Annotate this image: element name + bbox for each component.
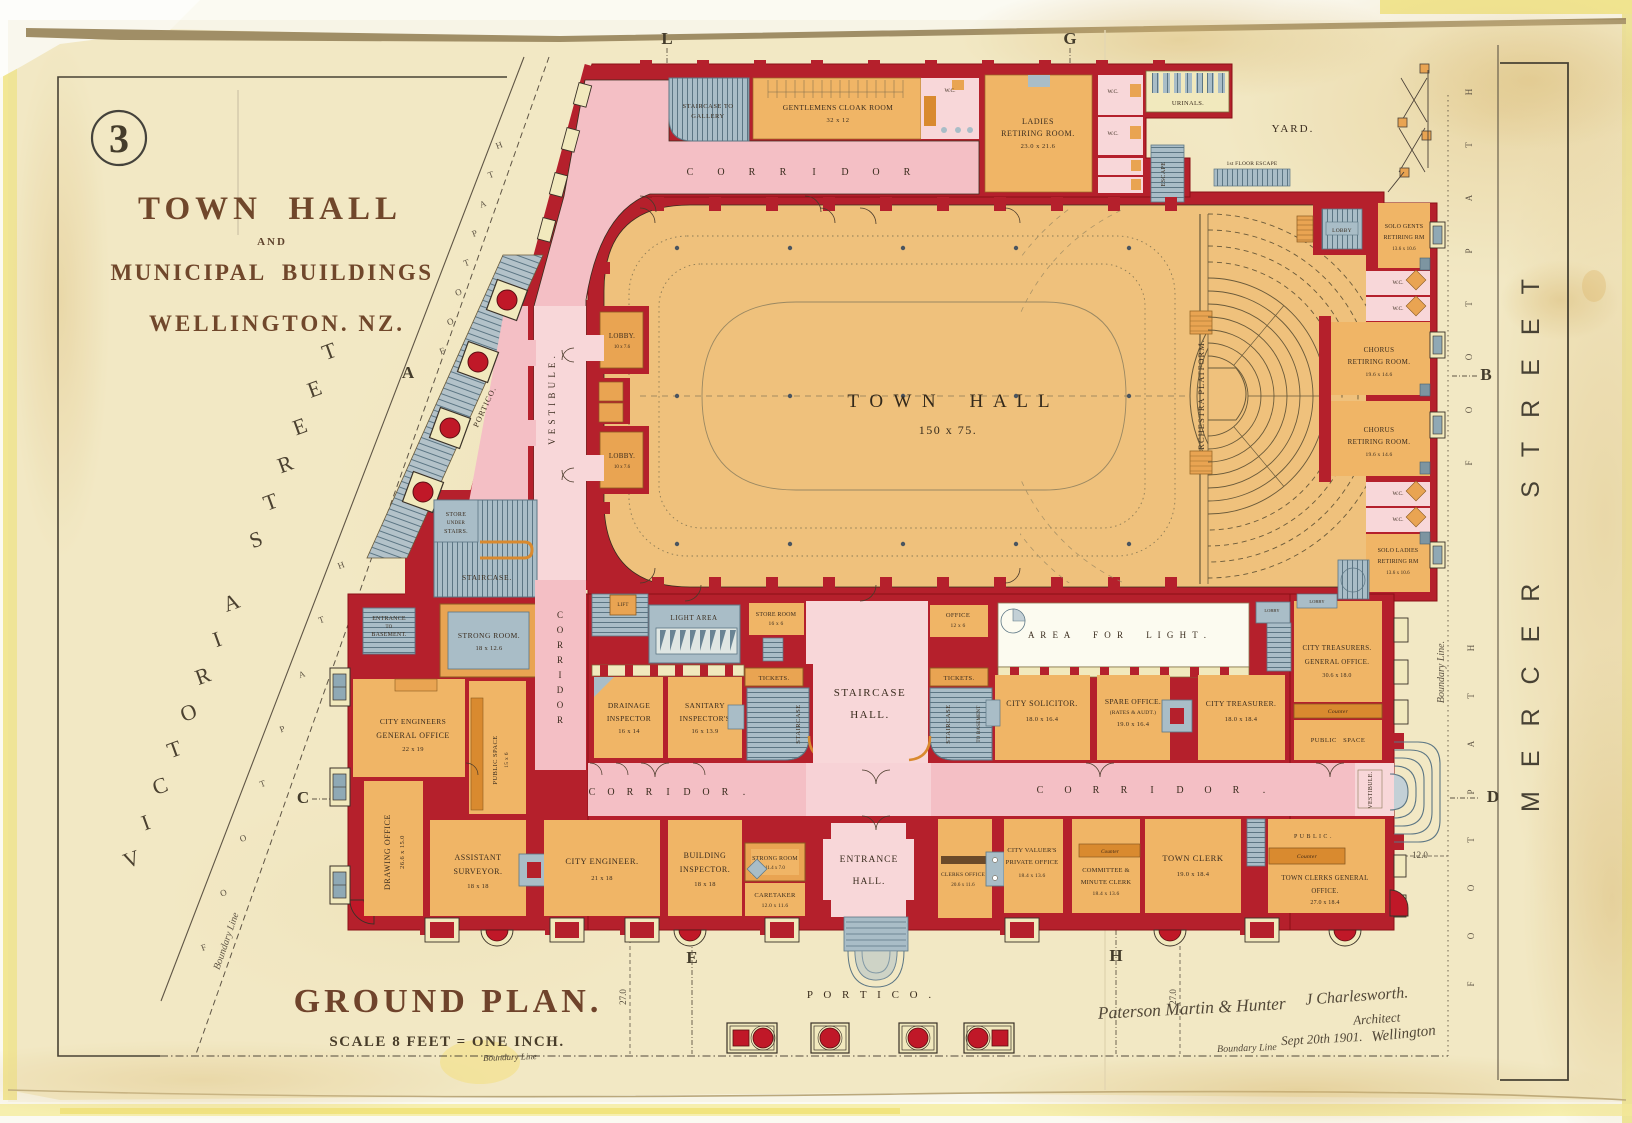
svg-text:SANITARY: SANITARY: [685, 701, 725, 710]
svg-text:19.0 x 18.4: 19.0 x 18.4: [1177, 871, 1210, 878]
svg-text:RETIRING ROOM.: RETIRING ROOM.: [1348, 438, 1411, 446]
svg-text:TICKETS.: TICKETS.: [759, 675, 790, 682]
svg-text:OFFICE.: OFFICE.: [1311, 888, 1338, 895]
svg-text:STORE ROOM: STORE ROOM: [756, 612, 797, 618]
svg-text:11.4 x 7.0: 11.4 x 7.0: [765, 866, 785, 871]
svg-text:URINALS.: URINALS.: [1172, 100, 1204, 107]
svg-text:P U B L I C .: P U B L I C .: [1294, 834, 1332, 840]
svg-text:MINUTE CLERK: MINUTE CLERK: [1081, 879, 1132, 886]
svg-text:TOWN CLERKS GENERAL: TOWN CLERKS GENERAL: [1281, 875, 1368, 882]
svg-text:LOBBY.: LOBBY.: [609, 332, 635, 340]
svg-text:I: I: [1150, 785, 1153, 796]
svg-text:1st FLOOR ESCAPE: 1st FLOOR ESCAPE: [1227, 161, 1278, 167]
svg-text:STAIRCASE.: STAIRCASE.: [462, 573, 512, 582]
svg-text:LOBBY: LOBBY: [1332, 228, 1352, 234]
svg-text:D: D: [1176, 785, 1183, 796]
svg-text:GENERAL OFFICE: GENERAL OFFICE: [376, 731, 450, 740]
svg-text:I: I: [812, 167, 815, 178]
svg-text:PUBLIC SPACE: PUBLIC SPACE: [492, 735, 499, 784]
svg-text:T O W N H A L L: T O W N H A L L: [847, 391, 1052, 412]
svg-text:R: R: [557, 655, 563, 665]
svg-text:18.4 x 13.6: 18.4 x 13.6: [1093, 891, 1120, 897]
svg-text:26.6 x 15.0: 26.6 x 15.0: [399, 835, 406, 869]
svg-text:ENTRANCE: ENTRANCE: [840, 855, 899, 865]
svg-text:C: C: [557, 610, 563, 620]
svg-text:150 x 75.: 150 x 75.: [919, 423, 978, 437]
svg-text:BUILDING: BUILDING: [684, 851, 727, 860]
svg-text:18.0 x 18.4: 18.0 x 18.4: [1225, 716, 1258, 723]
svg-text:15 x 6: 15 x 6: [504, 752, 510, 768]
svg-text:.: .: [1263, 785, 1266, 796]
svg-text:SOLO GENTS: SOLO GENTS: [1385, 224, 1424, 230]
svg-text:GENERAL OFFICE.: GENERAL OFFICE.: [1305, 658, 1370, 666]
svg-text:R: R: [749, 167, 756, 178]
svg-text:CITY ENGINEERS: CITY ENGINEERS: [380, 717, 446, 726]
svg-text:O: O: [607, 787, 614, 798]
svg-text:19.6 x 14.6: 19.6 x 14.6: [1366, 452, 1393, 458]
svg-text:TO: TO: [386, 625, 393, 630]
svg-text:18 x 18: 18 x 18: [467, 883, 489, 890]
svg-text:R: R: [722, 787, 729, 798]
svg-text:W.C.: W.C.: [1107, 131, 1119, 137]
svg-text:LADIES: LADIES: [1022, 117, 1054, 126]
svg-text:O: O: [557, 700, 564, 710]
svg-text:HALL.: HALL.: [853, 877, 886, 887]
svg-text:R: R: [557, 640, 563, 650]
svg-text:21 x 18: 21 x 18: [591, 875, 613, 882]
svg-text:DRAINAGE: DRAINAGE: [608, 701, 650, 710]
svg-text:CITY VALUER'S: CITY VALUER'S: [1007, 847, 1057, 854]
svg-text:STRONG ROOM.: STRONG ROOM.: [458, 631, 520, 640]
svg-text:R: R: [1233, 785, 1240, 796]
svg-text:LOBBY.: LOBBY.: [609, 452, 635, 460]
svg-text:O: O: [717, 167, 724, 178]
svg-text:CITY TREASURER.: CITY TREASURER.: [1206, 699, 1277, 708]
svg-text:R: R: [1121, 785, 1128, 796]
svg-text:12 x 6: 12 x 6: [951, 623, 966, 629]
svg-text:RETIRING RM: RETIRING RM: [1377, 559, 1418, 565]
svg-text:Counter: Counter: [1328, 709, 1349, 715]
svg-text:SPARE OFFICE.: SPARE OFFICE.: [1105, 697, 1161, 706]
svg-text:W.C.: W.C.: [1107, 89, 1119, 95]
svg-text:V E S T I B U L E .: V E S T I B U L E .: [547, 355, 557, 445]
svg-text:23.0 x 21.6: 23.0 x 21.6: [1021, 143, 1056, 150]
svg-text:YARD.: YARD.: [1272, 123, 1315, 135]
svg-text:W.C.: W.C.: [1392, 517, 1404, 523]
svg-text:TOWN CLERK: TOWN CLERK: [1162, 853, 1224, 863]
svg-text:10 x 7.6: 10 x 7.6: [614, 465, 631, 470]
svg-text:ASSISTANT: ASSISTANT: [455, 853, 502, 862]
svg-text:PUBLIC SPACE: PUBLIC SPACE: [1311, 737, 1366, 744]
svg-text:O: O: [872, 167, 879, 178]
svg-text:16 x 14: 16 x 14: [618, 728, 640, 735]
svg-text:27.0 x 18.4: 27.0 x 18.4: [1310, 900, 1339, 906]
svg-text:SURVEYOR.: SURVEYOR.: [454, 867, 503, 876]
svg-text:W.C.: W.C.: [1392, 280, 1404, 286]
svg-text:RETIRING RM: RETIRING RM: [1383, 235, 1424, 241]
svg-text:16 x 6: 16 x 6: [769, 621, 784, 627]
svg-text:R: R: [780, 167, 787, 178]
svg-text:18.4 x 13.6: 18.4 x 13.6: [1019, 873, 1046, 879]
svg-text:18 x 12.6: 18 x 12.6: [475, 645, 503, 652]
svg-text:CHORUS: CHORUS: [1364, 346, 1395, 354]
svg-text:13.6 x 10.6: 13.6 x 10.6: [1392, 247, 1416, 252]
svg-text:I: I: [666, 787, 669, 798]
svg-text:D: D: [841, 167, 848, 178]
svg-text:UNDER: UNDER: [447, 521, 466, 526]
svg-text:GENTLEMENS CLOAK ROOM: GENTLEMENS CLOAK ROOM: [783, 103, 893, 112]
svg-text:R: R: [1093, 785, 1100, 796]
svg-text:32 x 12: 32 x 12: [827, 117, 850, 124]
svg-text:Counter: Counter: [1101, 850, 1119, 855]
svg-text:PRIVATE OFFICE: PRIVATE OFFICE: [1006, 859, 1059, 866]
svg-text:O: O: [1064, 785, 1071, 796]
svg-text:RETIRING ROOM.: RETIRING ROOM.: [1001, 129, 1075, 138]
svg-text:SOLO LADIES: SOLO LADIES: [1378, 548, 1419, 554]
svg-text:C: C: [589, 787, 596, 798]
svg-text:STAIRCASE TO: STAIRCASE TO: [683, 103, 734, 110]
svg-text:TICKETS.: TICKETS.: [944, 675, 975, 682]
svg-text:O: O: [557, 625, 564, 635]
svg-text:CITY ENGINEER.: CITY ENGINEER.: [565, 856, 638, 866]
svg-text:HALL.: HALL.: [850, 709, 890, 721]
svg-text:(RATES & AUDT.): (RATES & AUDT.): [1110, 709, 1156, 716]
svg-text:A R E A F O R L I G H: A R E A F O R L I G H T .: [1028, 630, 1208, 640]
svg-text:P O R T I C O .: P O R T I C O .: [807, 989, 935, 1001]
svg-text:RETIRING ROOM.: RETIRING ROOM.: [1348, 358, 1411, 366]
svg-text:19.6 x 14.6: 19.6 x 14.6: [1366, 372, 1393, 378]
svg-text:STAIRCASE: STAIRCASE: [834, 687, 907, 699]
svg-text:W.C.: W.C.: [944, 88, 956, 94]
svg-text:INSPECTOR: INSPECTOR: [607, 714, 651, 723]
svg-text:STAIRCASE: STAIRCASE: [945, 704, 952, 743]
svg-text:VESTIBULE.: VESTIBULE.: [1368, 771, 1374, 808]
svg-text:DRAWING OFFICE: DRAWING OFFICE: [383, 814, 392, 890]
svg-text:18.0 x 16.4: 18.0 x 16.4: [1026, 716, 1059, 723]
svg-text:20.6 x 11.6: 20.6 x 11.6: [951, 883, 975, 888]
svg-text:STAIRCASE: STAIRCASE: [795, 704, 802, 743]
svg-text:R: R: [557, 715, 563, 725]
svg-text:W.C.: W.C.: [1392, 306, 1404, 312]
svg-text:O: O: [702, 787, 709, 798]
svg-text:C: C: [687, 167, 694, 178]
svg-text:16 x 13.9: 16 x 13.9: [691, 728, 718, 735]
svg-text:STAIRS.: STAIRS.: [444, 529, 468, 535]
svg-text:CLERKS OFFICE: CLERKS OFFICE: [941, 872, 985, 878]
svg-text:W.C.: W.C.: [1392, 491, 1404, 497]
svg-text:LOBBY: LOBBY: [1309, 599, 1325, 604]
svg-text:TO BASEMENT: TO BASEMENT: [977, 706, 982, 743]
svg-text:Counter: Counter: [1297, 854, 1318, 860]
svg-text:CITY SOLICITOR.: CITY SOLICITOR.: [1006, 699, 1078, 708]
svg-text:COMMITTEE &: COMMITTEE &: [1082, 867, 1130, 874]
svg-text:BASEMENT.: BASEMENT.: [371, 632, 406, 638]
svg-text:13.6 x 10.6: 13.6 x 10.6: [1386, 571, 1410, 576]
svg-text:19.0 x 16.4: 19.0 x 16.4: [1117, 721, 1150, 728]
svg-text:D: D: [683, 787, 690, 798]
svg-text:INSPECTOR.: INSPECTOR.: [680, 865, 730, 874]
svg-text:22 x 19: 22 x 19: [402, 746, 424, 753]
svg-text:R: R: [646, 787, 653, 798]
svg-text:LIFT: LIFT: [617, 603, 628, 608]
svg-text:18 x 18: 18 x 18: [694, 881, 716, 888]
svg-text:10 x 7.6: 10 x 7.6: [614, 345, 631, 350]
svg-text:R: R: [627, 787, 634, 798]
svg-text:.: .: [743, 787, 746, 798]
svg-text:LIGHT AREA: LIGHT AREA: [670, 614, 717, 622]
svg-text:I: I: [559, 670, 562, 680]
svg-text:R: R: [904, 167, 911, 178]
svg-text:D: D: [557, 685, 564, 695]
svg-text:ENTRANCE: ENTRANCE: [372, 616, 406, 622]
svg-text:O: O: [1204, 785, 1211, 796]
svg-text:LOBBY: LOBBY: [1264, 608, 1280, 613]
svg-text:CHORUS: CHORUS: [1364, 426, 1395, 434]
svg-text:30.6 x 18.0: 30.6 x 18.0: [1322, 673, 1351, 679]
svg-text:ESCAPE: ESCAPE: [1161, 162, 1167, 187]
svg-text:INSPECTOR'S: INSPECTOR'S: [680, 714, 731, 723]
svg-text:C: C: [1037, 785, 1044, 796]
svg-text:12.0 x 11.6: 12.0 x 11.6: [762, 903, 789, 909]
svg-text:GALLERY: GALLERY: [691, 113, 724, 120]
svg-text:OFFICE: OFFICE: [946, 612, 970, 619]
svg-text:CITY TREASURERS.: CITY TREASURERS.: [1303, 644, 1372, 652]
svg-text:STORE: STORE: [446, 512, 466, 518]
svg-text:CARETAKER: CARETAKER: [754, 892, 796, 899]
